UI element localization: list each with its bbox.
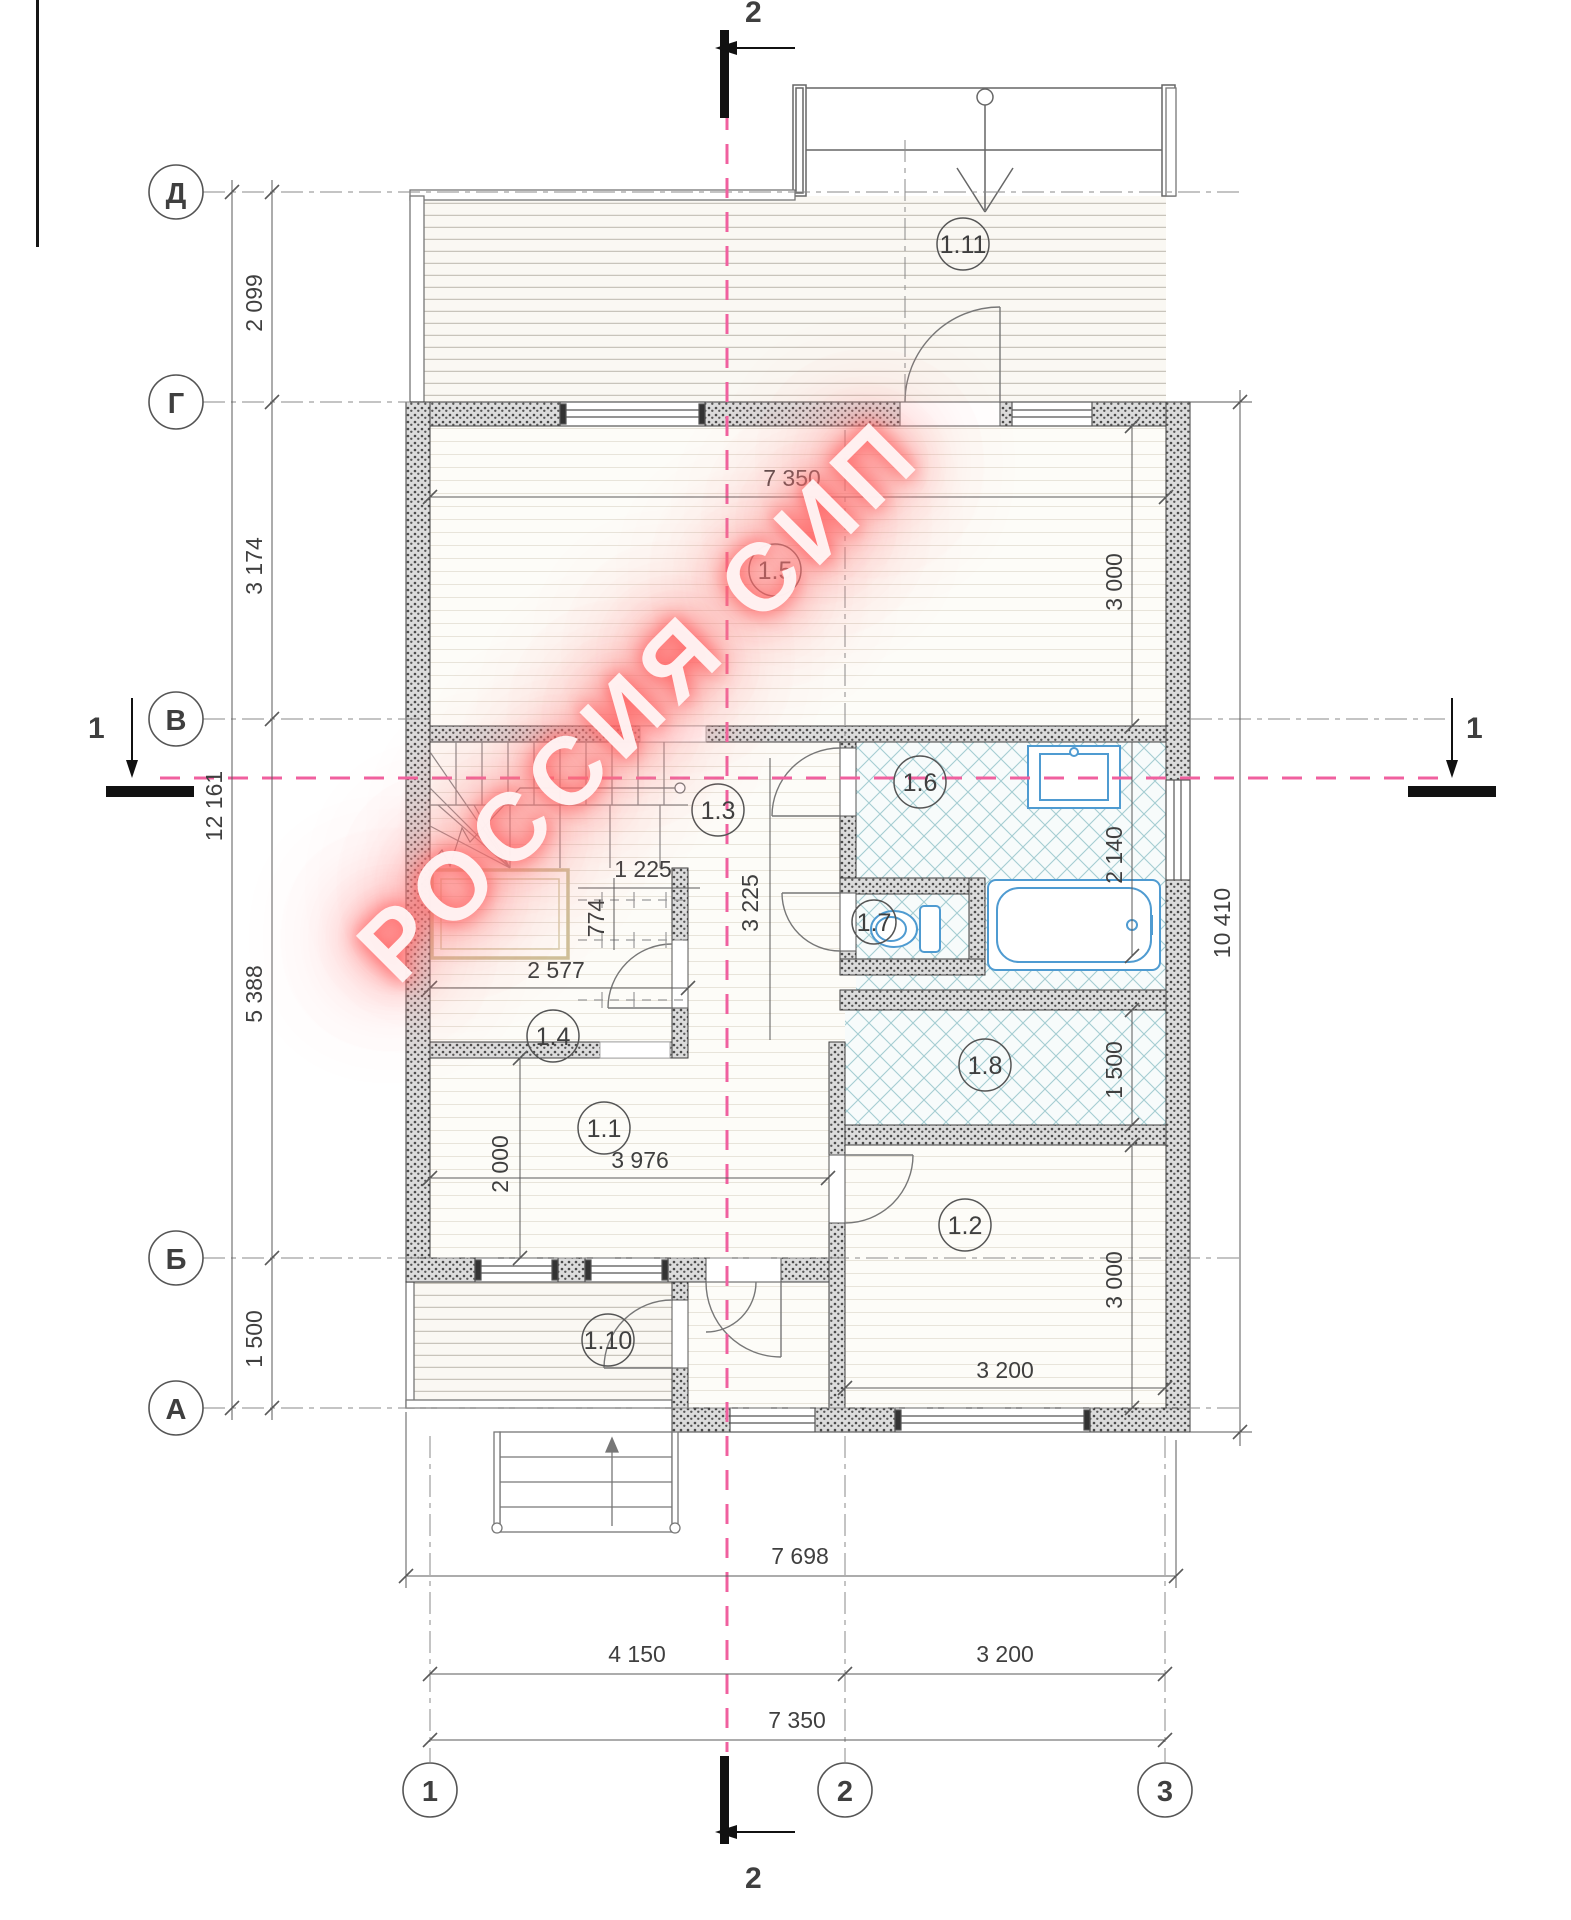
- wall-wc-top: [840, 878, 985, 894]
- floor-plan-drawing: 2 2 1 1: [0, 0, 1571, 1920]
- axis-bubble-b: Б: [149, 1231, 203, 1285]
- svg-text:1.1: 1.1: [587, 1115, 622, 1143]
- wall-bath-bottom: [840, 990, 1166, 1010]
- svg-text:1.5: 1.5: [758, 557, 793, 585]
- axis-bubble-2: 2: [818, 1763, 872, 1817]
- svg-text:1.6: 1.6: [903, 769, 938, 797]
- axis-bubble-a: А: [149, 1381, 203, 1435]
- section-label-right: 1: [1466, 712, 1483, 745]
- section-label-top: 2: [745, 0, 762, 29]
- dim-room12-w: 3 200: [976, 1357, 1034, 1383]
- dim-hall-small: 774: [583, 899, 609, 938]
- bathtub: [988, 880, 1160, 970]
- floor-plan-page: 2 2 1 1: [0, 0, 1571, 1920]
- svg-text:1.2: 1.2: [948, 1212, 983, 1240]
- terrace-railing: [793, 85, 1175, 212]
- dim-room16-h: 2 140: [1101, 826, 1127, 884]
- dim-bottom-12: 4 150: [608, 1641, 666, 1667]
- dim-left-gv: 3 174: [241, 537, 267, 595]
- svg-text:Б: Б: [166, 1244, 187, 1276]
- opening-hall-room11: [600, 1042, 670, 1058]
- dim-closet-w: 2 577: [527, 957, 585, 983]
- section-flag-bottom: 2: [715, 1756, 795, 1895]
- window-bath-right: [1166, 780, 1190, 880]
- wall-exterior-left: [406, 402, 430, 1282]
- svg-text:1.7: 1.7: [857, 909, 892, 937]
- svg-text:1.8: 1.8: [968, 1052, 1003, 1080]
- axis-bubble-g: Г: [149, 375, 203, 429]
- axis-bubble-1: 1: [403, 1763, 457, 1817]
- dim-left-vb: 5 388: [241, 965, 267, 1023]
- section-label-bottom: 2: [745, 1862, 762, 1895]
- svg-text:1.10: 1.10: [584, 1327, 633, 1355]
- svg-text:1.11: 1.11: [940, 231, 987, 259]
- window-g1: [560, 402, 705, 426]
- wall-wc-bottom: [840, 959, 985, 975]
- dim-bottom-23: 3 200: [976, 1641, 1034, 1667]
- opening-hall-livingroom: [640, 726, 706, 742]
- svg-text:А: А: [166, 1394, 187, 1426]
- dim-room12-h: 3 000: [1101, 1251, 1127, 1309]
- dim-left-ba: 1 500: [241, 1310, 267, 1368]
- page-edge-line: [36, 0, 39, 247]
- axis-bubble-d: Д: [149, 165, 203, 219]
- svg-text:1.4: 1.4: [536, 1023, 571, 1051]
- dim-room18-h: 1 500: [1101, 1041, 1127, 1099]
- dim-left-total: 12 161: [201, 771, 227, 841]
- terrace-deck: [410, 196, 1166, 402]
- dim-right-total: 10 410: [1209, 888, 1235, 958]
- svg-text:Д: Д: [166, 178, 187, 210]
- section-flag-right: 1: [1408, 698, 1496, 797]
- section-label-left: 1: [88, 712, 105, 745]
- window-a2: [895, 1408, 1090, 1432]
- window-g2: [1012, 402, 1092, 426]
- dim-hall-h: 3 225: [737, 874, 763, 932]
- wall-hall-right: [829, 1042, 845, 1408]
- svg-text:Г: Г: [168, 388, 184, 420]
- wall-room15-bottom: [430, 726, 1166, 742]
- window-b2: [585, 1258, 668, 1282]
- dim-room11-h: 2 000: [487, 1135, 513, 1193]
- porch-deck: [412, 1282, 672, 1402]
- bathroom-sink: [1028, 746, 1120, 808]
- railing-post-symbol: [977, 89, 993, 105]
- dim-bottom-ext: 7 698: [771, 1543, 829, 1569]
- wall-exterior-right: [1166, 402, 1190, 1432]
- vestibule-floor: [688, 1282, 829, 1408]
- section-flag-top: 2: [715, 0, 795, 118]
- svg-text:1.3: 1.3: [701, 797, 736, 825]
- svg-text:В: В: [166, 705, 187, 737]
- axis-bubble-3: 3: [1138, 1763, 1192, 1817]
- dim-ticks-left: [225, 185, 279, 1415]
- svg-text:3: 3: [1157, 1776, 1173, 1808]
- wall-room18-bottom: [840, 1125, 1166, 1145]
- svg-text:2: 2: [837, 1776, 853, 1808]
- axis-bubble-v: В: [149, 692, 203, 746]
- dim-left-dg: 2 099: [241, 274, 267, 332]
- svg-text:1: 1: [422, 1776, 438, 1808]
- dim-top-interior: 7 350: [763, 465, 821, 491]
- dim-room11-w: 3 976: [611, 1147, 669, 1173]
- dim-room15-h: 3 000: [1101, 553, 1127, 611]
- window-a1: [730, 1408, 815, 1432]
- dim-bottom-total: 7 350: [768, 1707, 826, 1733]
- dim-hall-w: 1 225: [614, 856, 672, 882]
- entrance-steps: [492, 1432, 680, 1533]
